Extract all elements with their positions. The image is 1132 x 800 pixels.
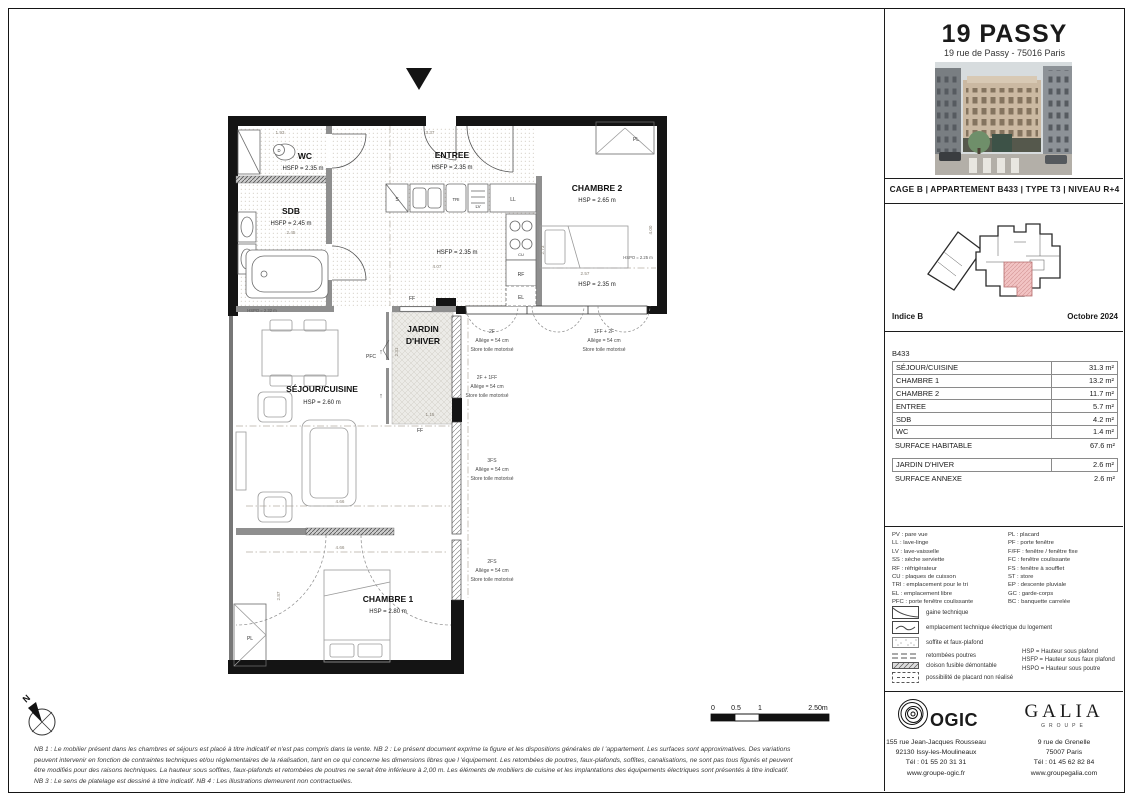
table-row: WC1.4 m² [892,426,1118,439]
emplacement-electrique-icon [892,621,919,634]
building-photo [935,62,1072,175]
room-label-sdb: SDB [282,206,300,216]
dim-chambre1-w: 4.66 [336,545,345,550]
legend-symbol-cloison: cloison fusible démontable [892,662,997,669]
tag-ff-kitchen: FF [409,296,415,302]
legend-symbol-elec: emplacement technique électrique du loge… [892,621,1052,634]
room-label-entree: ENTREE [435,150,470,160]
table-row: CHAMBRE 211.7 m² [892,388,1118,401]
project-title: 19 PASSY [886,20,1123,49]
tag-arrow-up-1: ↑ [379,349,383,356]
separator-5 [884,691,1123,692]
svg-text:2F + 1FF: 2F + 1FF [477,375,497,381]
tag-tri: TRI [452,197,459,202]
separator-3 [884,331,1123,332]
svg-text:1FF + 2F: 1FF + 2F [594,329,614,335]
separator-1 [884,178,1123,179]
north-arrow-icon: N [21,693,55,735]
tag-lv: LV [475,204,480,209]
separator-2 [884,203,1123,204]
dim-sejour-w: 4.66 [336,499,345,504]
legend-symbol-poutres: retombées poutres [892,652,976,660]
window-note-3: 2F + 1FFAllège = 54 cmStore toile motori… [465,375,508,399]
galia-wordmark: GALIA [1014,701,1114,723]
dim-kitchen-w: 4.07 [433,264,442,269]
svg-text:2.50m: 2.50m [808,705,828,712]
floor-plan: WC HSFP = 2.35 m SDB HSFP = 2.45 m 2.45 … [0,0,884,800]
room-label-chambre2: CHAMBRE 2 [572,183,623,193]
svg-text:Allège = 54 cm: Allège = 54 cm [475,467,508,473]
zone-height-chambre2-low: HSP = 2.35 m [578,282,615,288]
legend-symbol-gaine: gaine technique [892,606,968,619]
living-furniture [236,320,356,522]
svg-text:Store toile motorisé: Store toile motorisé [582,347,625,353]
room-height-sejour: HSP = 2.60 m [303,400,340,406]
separator-4 [884,526,1123,527]
tag-ff-jardin: FF [417,428,423,434]
svg-text:Allège = 54 cm: Allège = 54 cm [475,568,508,574]
room-height-entree: HSFP = 2.35 m [431,165,472,171]
footnote-line: NB 3 : Le sens de platelage est dessiné … [34,777,850,788]
dim-top-1: 1.93 [276,130,285,135]
room-label-jardin-1: JARDIN [407,324,439,334]
indice-label: Indice B [892,312,923,321]
dim-top-2: 3.37 [426,130,435,135]
svg-text:2FS: 2FS [487,559,497,565]
unit-number: B433 [892,349,910,358]
dim-jardin-w: 1.15 [426,412,435,417]
svg-text:0: 0 [711,705,715,712]
footnote-line: peuvent intervenir en fonction de contra… [34,756,850,767]
key-plan [918,212,1086,306]
annex-table: JARDIN D'HIVER2.6 m² SURFACE ANNEXE2.6 m… [892,458,1118,485]
window-note-1: 2FAllège = 54 cmStore toile motorisé [470,329,513,353]
bedroom2-furniture [540,122,654,268]
gaine-technique-icon [892,606,919,619]
footnote-line: être modifiés pour des raisons technique… [34,766,850,777]
svg-text:3FS: 3FS [487,458,497,464]
table-row: ENTREE5.7 m² [892,400,1118,413]
soffite-icon [892,637,919,648]
tag-ll: LL [510,197,516,203]
beam-height-chambre2: HSPO = 2.25 m [623,255,653,260]
project-address: 19 rue de Passy - 75016 Paris [886,48,1123,58]
table-row: JARDIN D'HIVER2.6 m² [892,458,1118,472]
svg-text:2F: 2F [489,329,495,335]
room-height-wc: HSFP = 2.35 m [282,166,323,172]
svg-text:Store toile motorisé: Store toile motorisé [470,476,513,482]
room-height-sdb: HSFP = 2.45 m [270,221,311,227]
table-row: CHAMBRE 113.2 m² [892,375,1118,388]
legend-col-2: PL : placardPF : porte fenêtre F/FF : fe… [1008,531,1120,607]
svg-text:Allège = 54 cm: Allège = 54 cm [470,384,503,390]
room-label-chambre1: CHAMBRE 1 [363,594,414,604]
tag-d: D [277,148,280,153]
window-note-2: 1FF + 2FAllège = 54 cmStore toile motori… [582,329,625,353]
galia-address: 9 rue de Grenelle 75007 Paris Tél : 01 4… [1008,738,1120,779]
dim-jardin-h: 2.31 [394,347,399,356]
tag-pl-chambre2: PL [633,137,639,143]
keyplan-left-wing [928,232,982,290]
tag-pfc: PFC [366,354,376,360]
footnote-line: NB 1 : Le mobilier présent dans les cham… [34,745,850,756]
ogic-address: 155 rue Jean-Jacques Rousseau 92130 Issy… [880,738,992,779]
svg-text:0.5: 0.5 [731,705,741,712]
tag-rf: RF [518,272,525,278]
dim-chambre1-h: 2.87 [276,591,281,600]
dim-kitchen-h: 2.73 [540,245,545,254]
zone-height-kitchen: HSFP = 2.35 m [436,250,477,256]
tag-pl-chambre1: PL [247,636,253,642]
svg-text:Store toile motorisé: Store toile motorisé [470,347,513,353]
legend-col-1: PV : pare vueLL : lave-linge LV : lave-v… [892,531,1008,607]
tag-arrow-up-2: ↑ [379,393,383,400]
svg-text:1: 1 [758,705,762,712]
galia-groupe-label: GROUPE [1014,723,1114,729]
window-note-4: 3FSAllège = 54 cmStore toile motorisé [470,458,513,482]
svg-text:Store toile motorisé: Store toile motorisé [465,393,508,399]
table-row: SÉJOUR/CUISINE31.3 m² [892,361,1118,375]
scale-bar: 0 0.5 1 2.50m [711,705,829,721]
beam-height-sejour: HSPO = 2.32 m [247,308,277,313]
table-annex-total-row: SURFACE ANNEXE2.6 m² [892,472,1118,485]
svg-text:Allège = 54 cm: Allège = 54 cm [475,338,508,344]
tag-cu: CU [518,252,524,257]
panel-divider [884,8,885,791]
dim-chambre2-w: 2.57 [581,271,590,276]
north-label: N [21,693,33,705]
surface-table: SÉJOUR/CUISINE31.3 m² CHAMBRE 113.2 m² C… [892,361,1118,452]
window-note-5: 2FSAllège = 54 cmStore toile motorisé [470,559,513,583]
tag-el: EL [518,295,524,301]
table-total-row: SURFACE HABITABLE67.6 m² [892,439,1118,452]
svg-text:Allège = 54 cm: Allège = 54 cm [587,338,620,344]
legend-symbol-placard: possibilité de placard non réalisé [892,672,1013,683]
entry-arrow-icon [406,68,432,90]
room-height-chambre1: HSP = 2.80 m [369,609,406,615]
dim-chambre2-h: 4.00 [648,225,653,234]
ogic-wordmark: OGIC [930,710,978,731]
retombees-poutres-icon [892,652,919,660]
date-label: Octobre 2024 [1000,312,1118,321]
room-label-wc: WC [298,151,312,161]
svg-text:Store toile motorisé: Store toile motorisé [470,577,513,583]
table-row: SDB4.2 m² [892,413,1118,426]
unit-banner: CAGE B | APPARTEMENT B433 | TYPE T3 | NI… [886,184,1123,194]
bedroom1-furniture [234,570,390,666]
height-definitions: HSP = Hauteur sous plafond HSFP = Hauteu… [1022,648,1122,673]
room-label-jardin-2: D'HIVER [406,336,440,346]
dim-sdb: 2.45 [287,230,296,235]
room-label-sejour: SÉJOUR/CUISINE [286,384,358,394]
ogic-logo [896,698,930,731]
placard-non-realise-icon [892,672,919,683]
cloison-fusible-icon [892,662,919,669]
room-height-chambre2: HSP = 2.65 m [578,198,615,204]
legend-symbol-soffite: soffite et faux-plafond [892,637,983,648]
footnotes: NB 1 : Le mobilier présent dans les cham… [34,745,850,787]
